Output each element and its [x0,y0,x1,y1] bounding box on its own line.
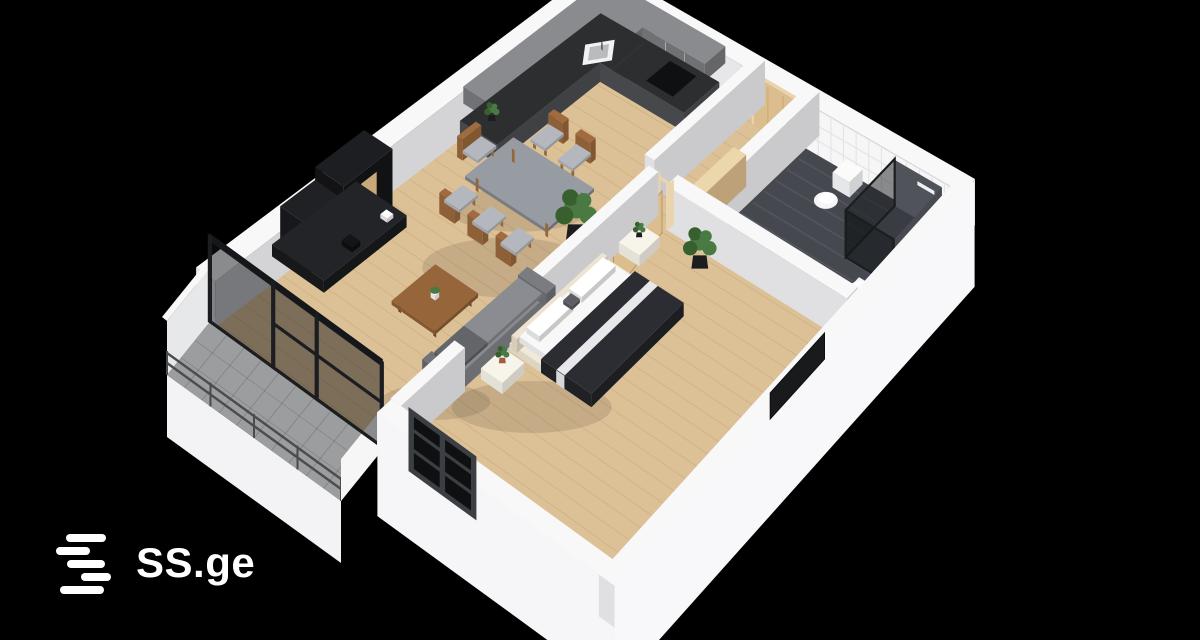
glass-door-mullion [271,280,275,371]
plant-foliage [639,223,644,228]
plant-foliage [633,227,638,232]
plant-pot [488,115,496,121]
brand-logo: SS.ge [54,532,255,594]
furniture-leg [512,149,515,164]
plant-pot [691,255,708,268]
vase-plant [430,287,440,294]
furniture-leg [545,223,548,238]
plant-foliage [492,104,498,110]
plant-foliage [635,222,640,227]
floorplan-stage: SS.ge [0,0,1200,640]
plant-foliage [502,347,507,352]
plant-foliage [495,352,501,358]
plant-pot [636,232,642,237]
plant-foliage [493,108,500,115]
plant-foliage [562,189,579,206]
furniture-leg [476,178,479,193]
glass-door-mullion [208,234,212,325]
plant-foliage [484,108,491,115]
apartment [162,0,975,640]
plant-foliage [683,241,697,255]
plant-foliage [700,230,712,242]
glass-door-mullion [315,312,319,403]
plant-foliage [576,193,591,208]
plant-foliage [555,206,573,224]
plant-foliage [503,352,509,358]
plant-foliage [688,227,701,240]
plant-foliage [487,102,493,108]
brand-logo-text: SS.ge [136,542,255,584]
plant-foliage [498,346,504,352]
interior-door-frame [667,179,674,231]
plant-foliage [702,241,716,255]
plant-foliage [640,227,645,232]
ss-logo-icon [54,532,112,594]
plant-pot [499,358,506,364]
toilet-seat [818,193,835,204]
